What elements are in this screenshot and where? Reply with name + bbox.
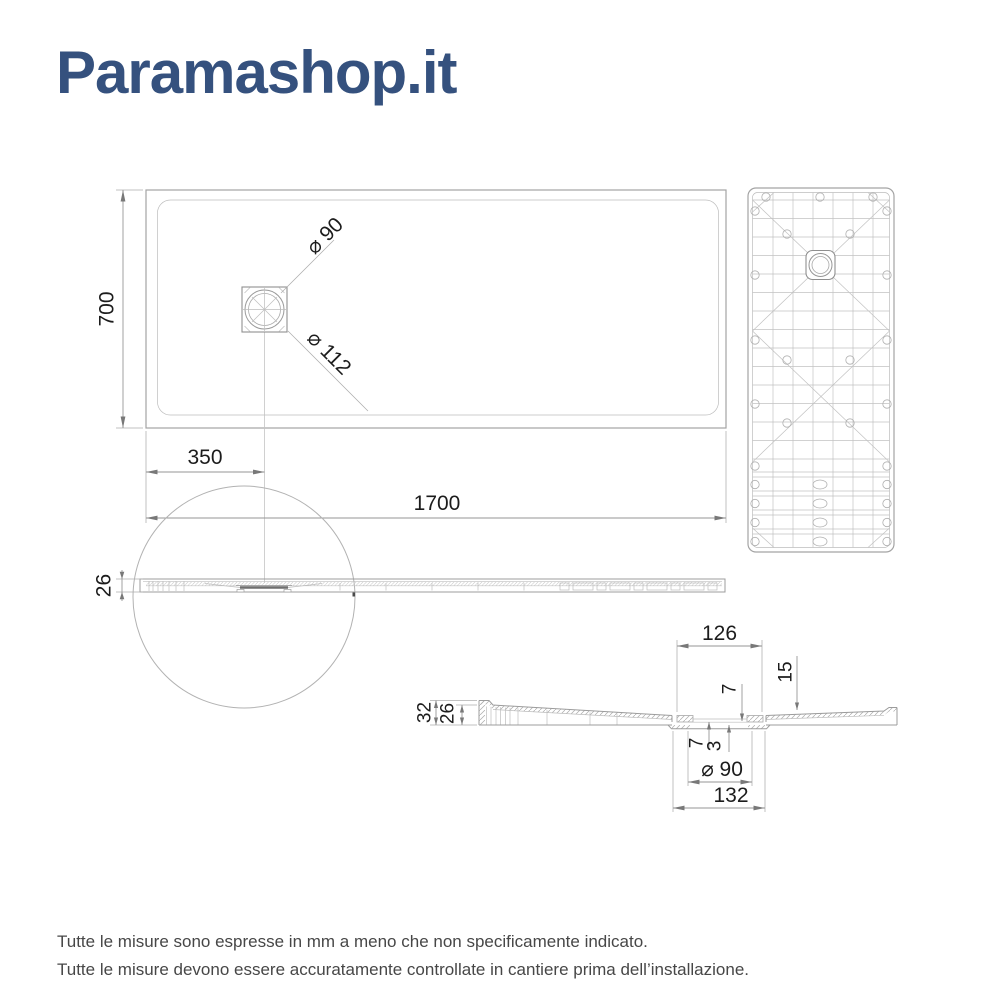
- note-line-2: Tutte le misure devono essere accuratame…: [57, 956, 749, 984]
- bottom-view: [748, 188, 894, 552]
- section-profile: [479, 701, 897, 729]
- bottom-drain-outlet: [806, 251, 835, 280]
- detail-circle: [133, 486, 355, 708]
- measurement-notes: Tutte le misure sono espresse in mm a me…: [57, 928, 749, 983]
- drain-offset-label: 350: [187, 446, 222, 469]
- recess-width-label: 126: [702, 622, 737, 645]
- floor-thickness-label: 3: [705, 741, 726, 752]
- dimension-drain-offset-350: 350: [146, 431, 265, 523]
- dimension-edge-thickness-15: 15: [776, 656, 798, 710]
- note-line-1: Tutte le misure sono espresse in mm a me…: [57, 928, 749, 956]
- plan-view: ⌀ 90 ⌀ 112 700 350 1700: [96, 190, 727, 583]
- plan-outer-edge: [146, 190, 726, 428]
- depth-label: 700: [96, 291, 119, 326]
- drain-top-view: [242, 287, 287, 332]
- body-height-label: 26: [438, 703, 459, 724]
- side-thickness-label: 26: [93, 574, 116, 597]
- total-height-label: 32: [415, 702, 436, 723]
- detail-marker: [353, 593, 356, 597]
- flange-width-label: 132: [713, 784, 748, 807]
- edge-thickness-label: 15: [776, 661, 797, 682]
- section-view: 126 15 7 32 26: [415, 622, 898, 812]
- dimension-width-1700: 1700: [146, 431, 726, 523]
- technical-drawing: ⌀ 90 ⌀ 112 700 350 1700: [0, 0, 1000, 1000]
- dimension-recess-width-126: 126: [677, 622, 762, 712]
- product-dimension-sheet: Paramashop.it: [0, 0, 1000, 1000]
- side-profile: [140, 579, 725, 592]
- dimension-body-height-26: 26: [438, 703, 478, 725]
- width-label: 1700: [414, 492, 461, 515]
- bottom-outer-edge: [748, 188, 894, 552]
- dimension-seat-depth-7: 7: [720, 684, 743, 721]
- seat-depth-label: 7: [720, 684, 741, 695]
- side-view: 26: [93, 486, 726, 708]
- section-drain-diameter-label: ⌀ 90: [701, 758, 743, 781]
- dimension-depth-700: 700: [96, 190, 144, 428]
